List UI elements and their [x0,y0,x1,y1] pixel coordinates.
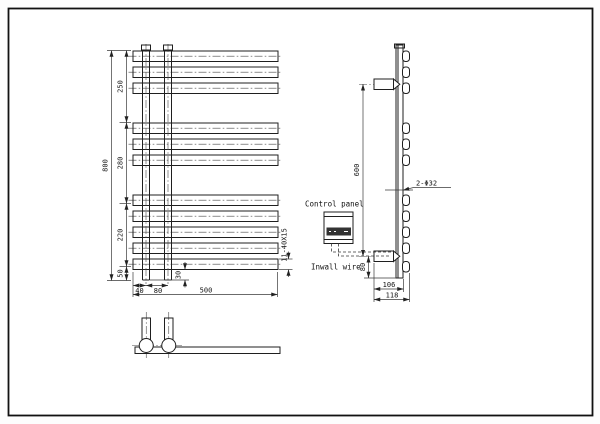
drawing-sheet: 800 250 280 220 50 40 80 500 30 [0,0,600,424]
technical-drawing-canvas: 800 250 280 220 50 40 80 500 30 [0,0,600,424]
bar-end-tab [403,243,410,254]
hole-spec-label: 2-Φ32 [416,180,437,188]
bar-end-tab [403,51,410,62]
pipe-section-circle [139,339,153,353]
dimension-label-depth-inner: 106 [383,281,396,289]
dimension-label-segment-2: 280 [117,157,125,170]
bar-end-tab [403,262,410,273]
dimension-label-bottom-gap: 30 [175,271,183,279]
dimension-label-left-offset: 40 [135,287,143,295]
bar-end-tab [403,67,410,78]
top-view-bar [135,347,280,354]
bar-end-tab [403,123,410,134]
dimension-label-depth-overall: 118 [386,292,399,300]
side-rail [396,45,403,278]
dimension-label-pipe-spacing: 80 [154,287,162,295]
pipe-section-circle [162,339,176,353]
dimension-label-wire-height: 80 [359,263,367,271]
dimension-label-bar-spec: 11-40X15 [281,228,289,262]
bar-end-tab [403,211,410,222]
bar-end-tab [403,139,410,150]
dimension-label-segment-3: 220 [117,229,125,242]
dimension-label-overall-height: 800 [102,159,110,172]
bar-end-tab [403,155,410,166]
inwall-wire-label: Inwall wire [311,263,361,272]
bar-end-tab [403,227,410,238]
dimension-label-segment-4: 50 [117,269,125,277]
dimension-label-bracket-spacing: 600 [353,164,361,177]
control-panel-label: Control panel [305,200,364,209]
dimension-label-segment-1: 250 [117,80,125,93]
sheet-border [9,9,593,416]
dimension-label-overall-width: 500 [200,287,213,295]
bar-end-tab [403,195,410,206]
bar-end-tab [403,83,410,94]
